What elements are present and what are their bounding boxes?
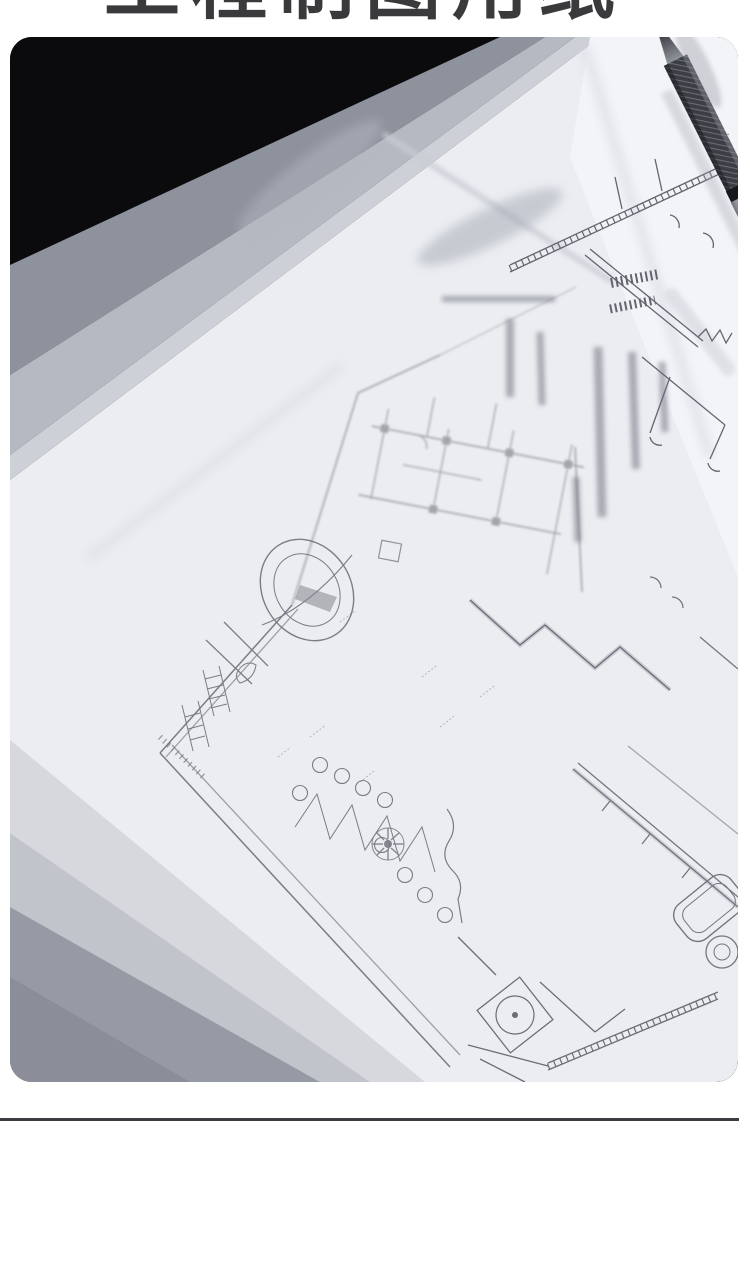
page-title-clipped: 工程制图用纸 — [0, 0, 750, 29]
bottom-whitespace — [0, 1121, 750, 1279]
north-arrow — [372, 828, 404, 860]
product-photo: .5 — [10, 37, 738, 1082]
photo-scene: .5 — [10, 37, 738, 1082]
page-title-text: 工程制图用纸 — [104, 0, 750, 27]
